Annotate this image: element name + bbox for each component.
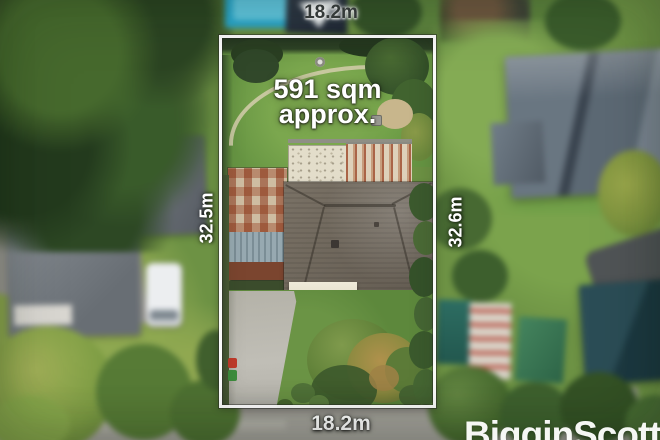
agency-logo: BigginScott [464,414,660,440]
teal-shed [436,299,472,364]
tree [452,250,508,302]
frontage-label-bottom: 18.2m [231,412,451,436]
side-label-right: 32.6m [446,196,467,247]
aerial-property-photo: 18.2m 18.2m 32.5m 32.6m 591 sqm approx. … [0,0,660,440]
area-label-line2: approx. [219,102,436,127]
frontage-label-top: 18.2m [221,2,441,24]
teal-shed [515,316,567,383]
side-label-left: 32.5m [197,192,218,243]
van-windshield [150,310,178,320]
neighbor-house-bottom-right [579,279,660,385]
area-label: 591 sqm approx. [219,77,436,127]
neighbor-porch [14,304,72,325]
neighbor-house-right-wing [490,121,545,186]
agency-logo-text: BigginScott [464,414,660,440]
tree [598,150,660,236]
